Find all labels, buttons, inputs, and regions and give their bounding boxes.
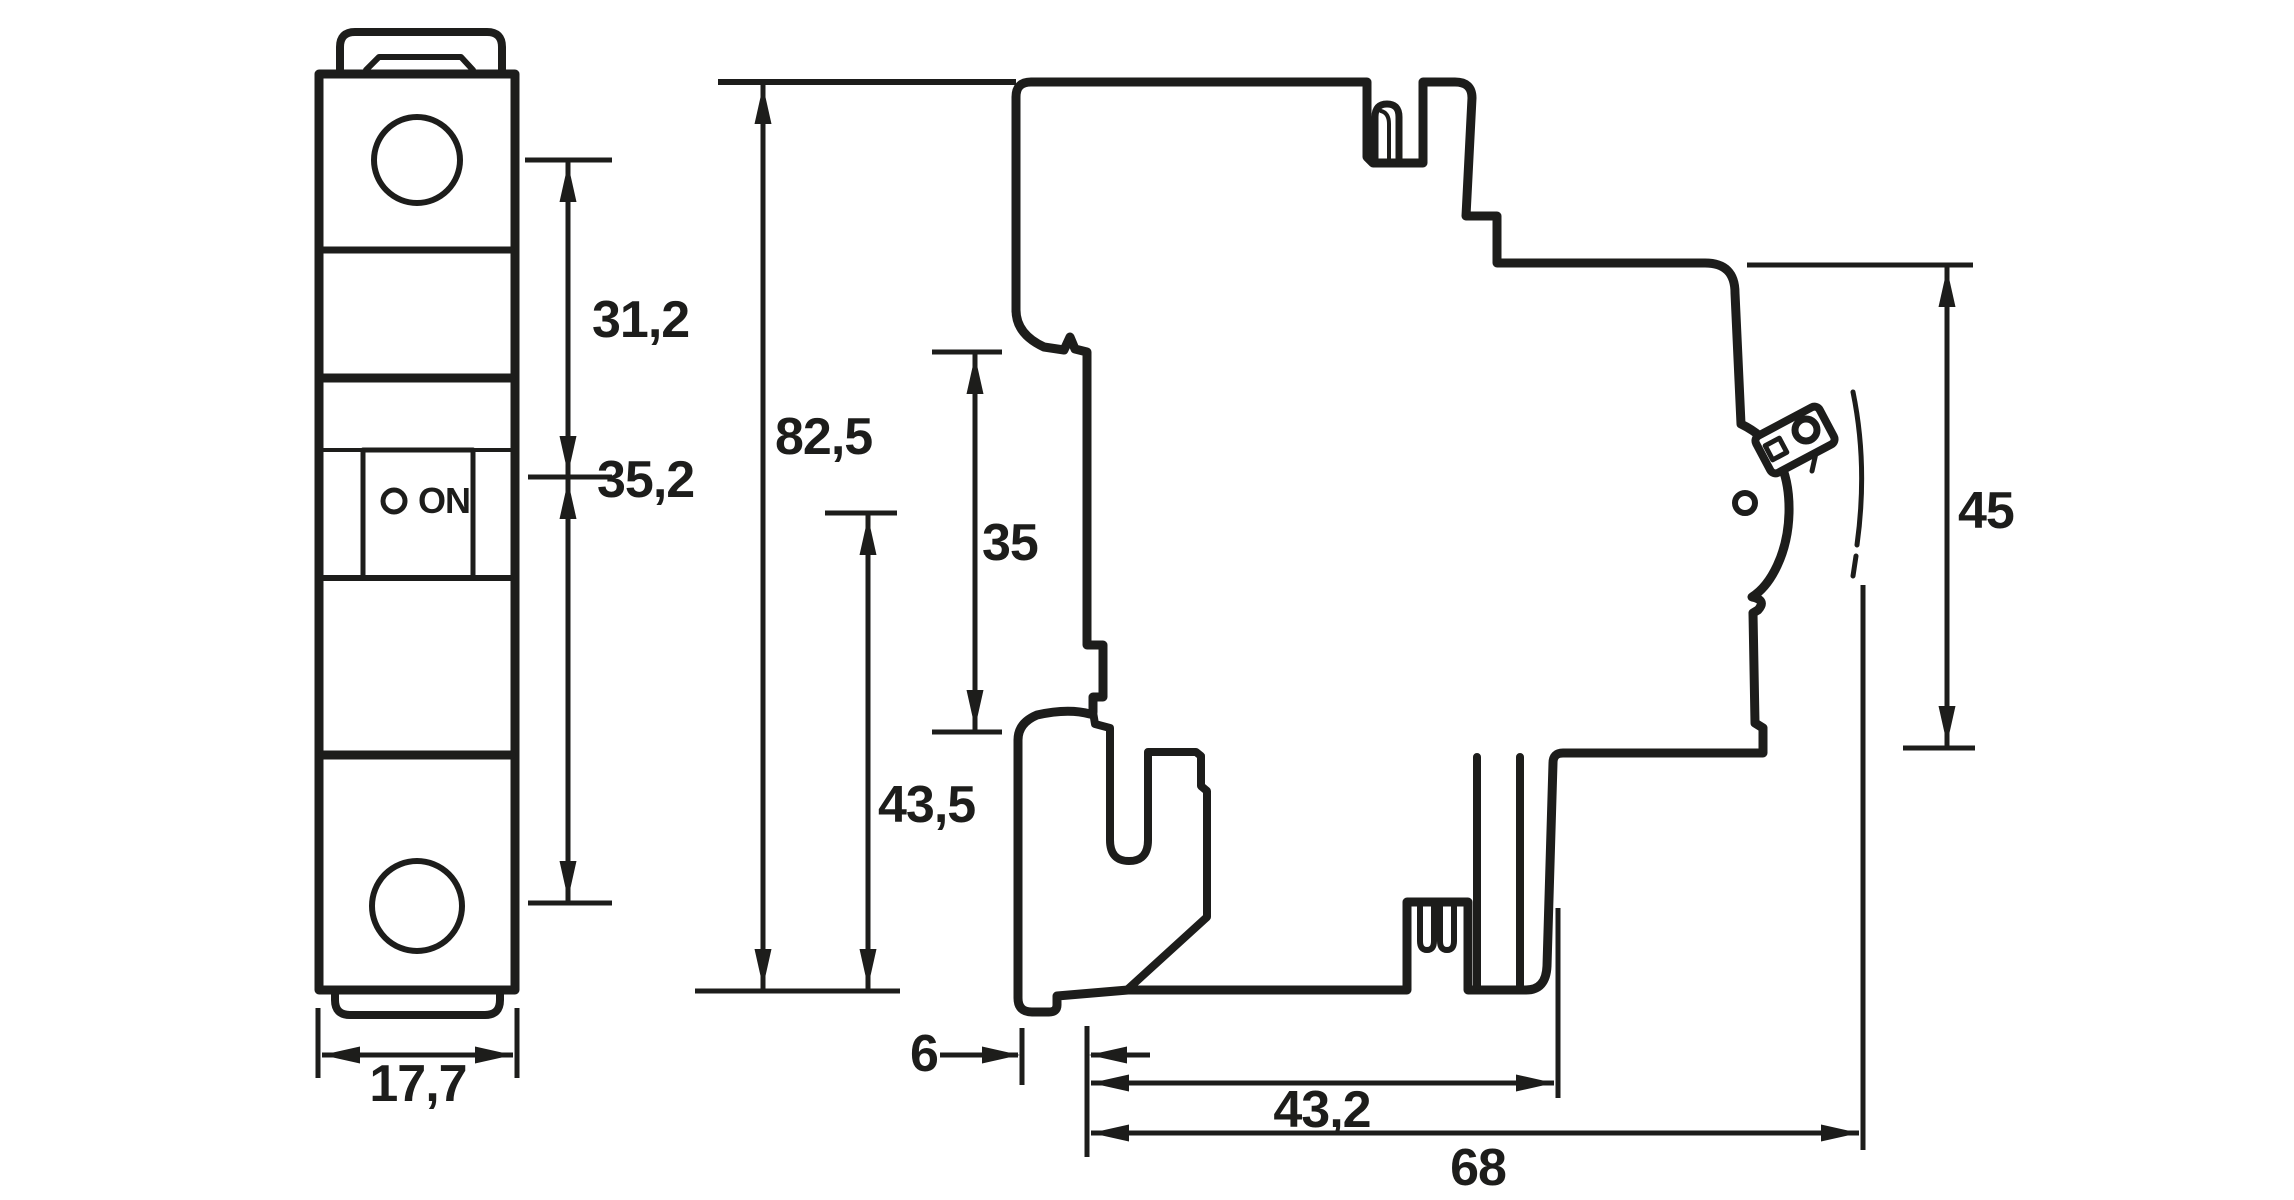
dim-label-31-2: 31,2: [592, 291, 689, 349]
dim-label-35-2: 35,2: [597, 451, 694, 509]
toggle-lever-slot: [1765, 438, 1787, 460]
dim-label-17-7: 17,7: [369, 1055, 466, 1113]
breaker-dimension-drawing: ON 31,2 35,2 17,7: [0, 0, 2294, 1200]
arrowhead-right-icon: [1516, 1075, 1554, 1092]
din-rail-slot: [1093, 712, 1207, 989]
dim-label-6: 6: [910, 1025, 938, 1083]
arrowhead-left-icon: [1089, 1047, 1127, 1064]
toggle-pivot-pin: [1735, 493, 1755, 513]
toggle-lever: [1753, 405, 1836, 476]
arrowhead-up-icon: [755, 86, 772, 124]
dim-label-43-2: 43,2: [1273, 1081, 1370, 1139]
arrowhead-left-icon: [1091, 1125, 1129, 1142]
arrowhead-up-icon: [860, 517, 877, 555]
arrowhead-down-icon: [1939, 706, 1956, 744]
arrowhead-left-icon: [1091, 1075, 1129, 1092]
side-body-outline: [1016, 82, 1789, 1012]
side-view: [1016, 82, 1862, 1012]
dim-label-35: 35: [982, 514, 1038, 572]
front-body: [319, 74, 515, 990]
arrowhead-left-icon: [322, 1047, 360, 1064]
arrowhead-up-icon: [967, 356, 984, 394]
technical-drawing-page: ON 31,2 35,2 17,7: [0, 0, 2294, 1200]
top-terminal-rib-inner: [1381, 111, 1389, 160]
front-top-tab-inner: [366, 57, 473, 70]
dimension-35: 35: [932, 352, 1038, 732]
arrowhead-up-icon: [560, 164, 577, 202]
arrowhead-up-icon: [560, 481, 577, 519]
on-indicator-icon: [383, 490, 405, 512]
front-top-terminal-circle: [374, 117, 460, 203]
arrowhead-up-icon: [1939, 269, 1956, 307]
dimension-17-7: 17,7: [318, 1008, 517, 1113]
dimension-43-2: 43,2: [1091, 908, 1558, 1139]
front-top-tab: [340, 32, 502, 72]
arrowhead-down-icon: [755, 949, 772, 987]
arrowhead-right-icon: [982, 1047, 1020, 1064]
dimension-35-2: 35,2: [528, 451, 694, 903]
dim-label-43-5: 43,5: [878, 776, 975, 834]
arrowhead-right-icon: [475, 1047, 513, 1064]
dimension-31-2: 31,2: [525, 160, 689, 477]
front-bottom-terminal-circle: [372, 861, 462, 951]
arrowhead-down-icon: [860, 949, 877, 987]
arrowhead-down-icon: [560, 436, 577, 474]
dim-label-68: 68: [1450, 1139, 1506, 1197]
arrowhead-down-icon: [967, 690, 984, 728]
arrowhead-right-icon: [1821, 1125, 1859, 1142]
toggle-swing-arc: [1853, 392, 1862, 576]
dim-label-45: 45: [1958, 482, 2014, 540]
bottom-terminal-ribs: [1420, 902, 1454, 950]
toggle-lever-hole: [1795, 419, 1817, 441]
on-label: ON: [418, 480, 470, 521]
dim-label-82-5: 82,5: [775, 408, 872, 466]
dimension-43-5: 43,5: [825, 513, 975, 989]
arrowhead-down-icon: [560, 861, 577, 899]
support-channel-lines: [1477, 757, 1520, 986]
front-bottom-tab: [335, 992, 500, 1015]
front-view: ON: [319, 32, 515, 1015]
dimension-82-5: 82,5: [695, 82, 1016, 991]
